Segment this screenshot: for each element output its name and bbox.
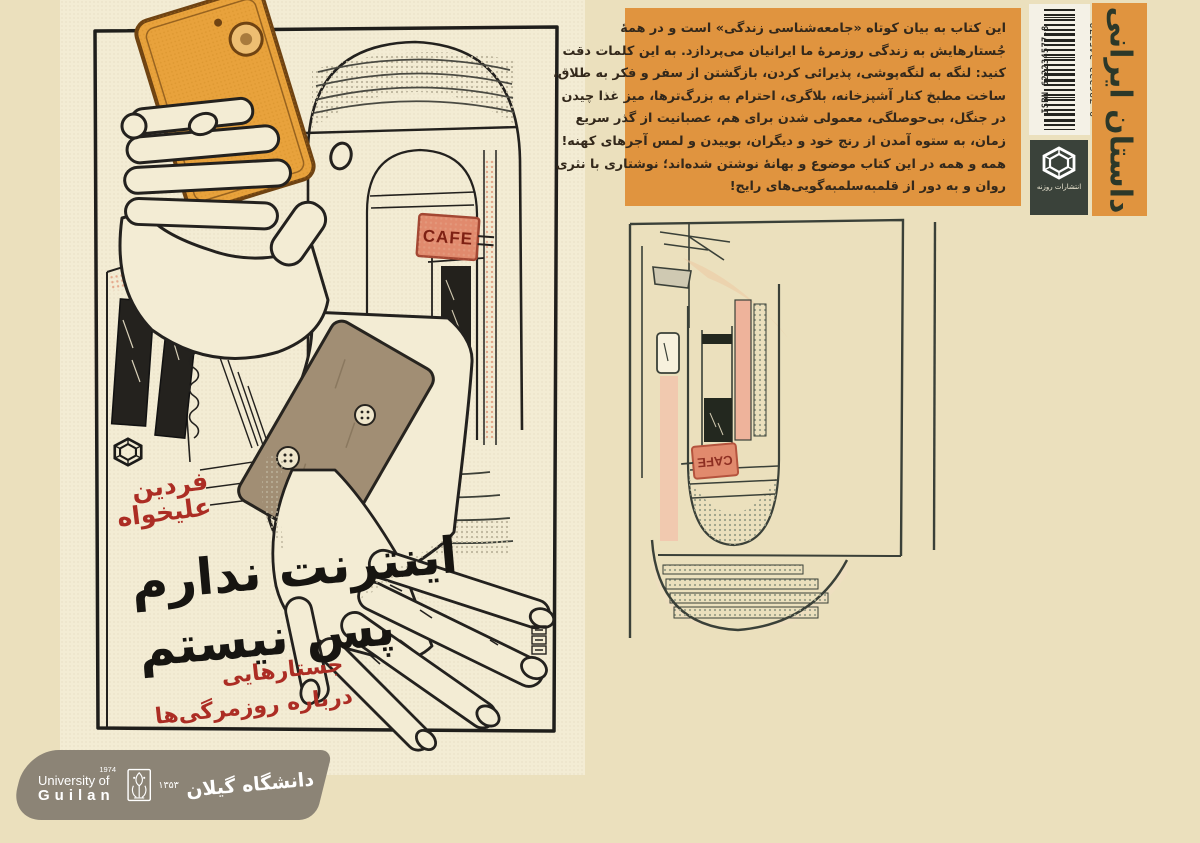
thumbnail xyxy=(328,141,354,171)
flipped-doorway xyxy=(704,398,732,442)
blurb-line: زمان، به ستوه آمدن از رنج خود و دیگران، … xyxy=(640,131,1006,154)
pink-stripe xyxy=(660,376,678,541)
book-scan-page: { "front": { "author_line1": "فردین", "a… xyxy=(0,0,1200,843)
blurb-line: همه و همه در این کتاب موضوع و بهانهٔ نوش… xyxy=(640,154,1006,177)
blurb-line: جُستارهایش به زندگی روزمرهٔ ما ایرانیان … xyxy=(640,41,1006,64)
door-plate xyxy=(657,333,679,373)
publisher-logo-icon xyxy=(1041,146,1077,180)
university-name-en: 1974 University of Guilan xyxy=(38,766,122,803)
category-strip: داستان ایرانی xyxy=(1092,3,1147,216)
fingernail xyxy=(122,114,146,138)
barcode-bars xyxy=(1044,9,1075,130)
category-label: داستان ایرانی xyxy=(1102,6,1137,213)
flipped-arch: CAFE xyxy=(680,284,779,545)
university-name-fa: دانشگاه گیلان xyxy=(185,768,315,801)
university-emblem-icon xyxy=(127,762,151,808)
front-cover: CAFE xyxy=(60,0,585,775)
pink-panel xyxy=(735,300,751,440)
blurb-line: در جنگل، بی‌حوصلگی، معمولی شدن برای هم، … xyxy=(640,108,1006,131)
blurb-line: کنید: لنگه به لنگه‌پوشی، پذیرائی کردن، ب… xyxy=(640,63,1006,86)
blurb-line: ساخت مطبخ کنار آشپزخانه، بلاگری، احترام … xyxy=(640,86,1006,109)
artist-signature xyxy=(532,626,546,654)
blurb-line: این کتاب به بیان کوتاه «جامعه‌شناسی زندگ… xyxy=(640,18,1006,41)
back-cover-blurb: این کتاب به بیان کوتاه «جامعه‌شناسی زندگ… xyxy=(625,8,1021,206)
author-name: فردین علیخواه xyxy=(113,468,213,531)
svg-text:CAFE: CAFE xyxy=(696,452,733,470)
founding-year-fa: ۱۳۵۳ xyxy=(158,780,178,791)
publisher-name: انتشارات روزنه xyxy=(1037,183,1081,191)
flipped-steps xyxy=(652,540,847,630)
back-cover-illustration: CAFE xyxy=(628,218,943,648)
isbn-barcode: ISBN 622234577-8 9 786222 345778 xyxy=(1029,4,1090,135)
publisher-mark-icon xyxy=(112,437,144,467)
blurb-line: روان و به دور از قلمبه‌سلمبه‌گویی‌های را… xyxy=(640,176,1006,199)
svg-text:CAFE: CAFE xyxy=(422,226,473,248)
publisher-logo-block: انتشارات روزنه xyxy=(1030,140,1088,215)
university-watermark: 1974 University of Guilan ۱۳۵۳ دانشگاه گ… xyxy=(18,750,324,820)
